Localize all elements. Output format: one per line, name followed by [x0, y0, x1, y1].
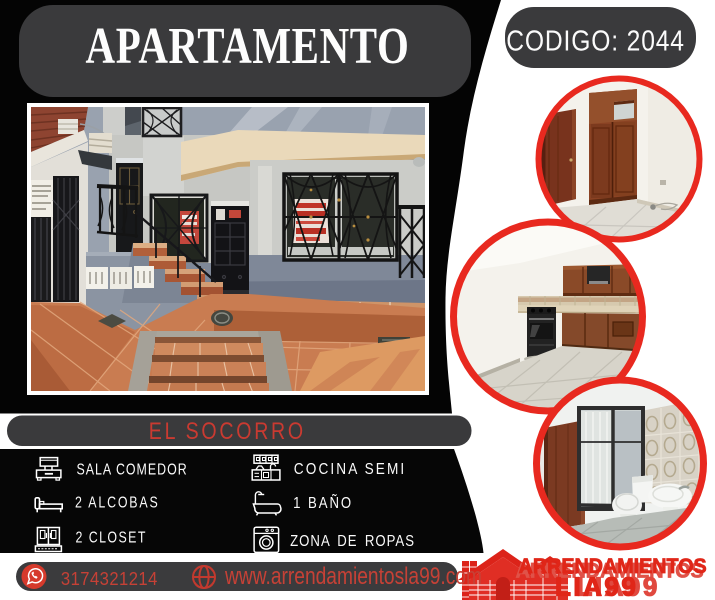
svg-text:www.arrendamientosla99.com: www.arrendamientosla99.com	[224, 562, 482, 590]
svg-text:CODIGO: 2044: CODIGO: 2044	[506, 24, 685, 56]
svg-text:EL SOCORRO: EL SOCORRO	[149, 417, 306, 445]
svg-text:APARTAMENTO: APARTAMENTO	[86, 19, 410, 75]
svg-text:1 BAÑO: 1 BAÑO	[293, 494, 353, 512]
svg-text:2 CLOSET: 2 CLOSET	[76, 528, 147, 546]
svg-text:2 ALCOBAS: 2 ALCOBAS	[75, 493, 160, 511]
svg-text:SALA COMEDOR: SALA COMEDOR	[77, 460, 188, 478]
svg-text:LIA99: LIA99	[555, 572, 638, 600]
svg-text:3174321214: 3174321214	[61, 568, 158, 589]
svg-text:COCINA SEMI: COCINA SEMI	[294, 461, 407, 478]
svg-text:ZONA DE ROPAS: ZONA DE ROPAS	[290, 533, 415, 550]
